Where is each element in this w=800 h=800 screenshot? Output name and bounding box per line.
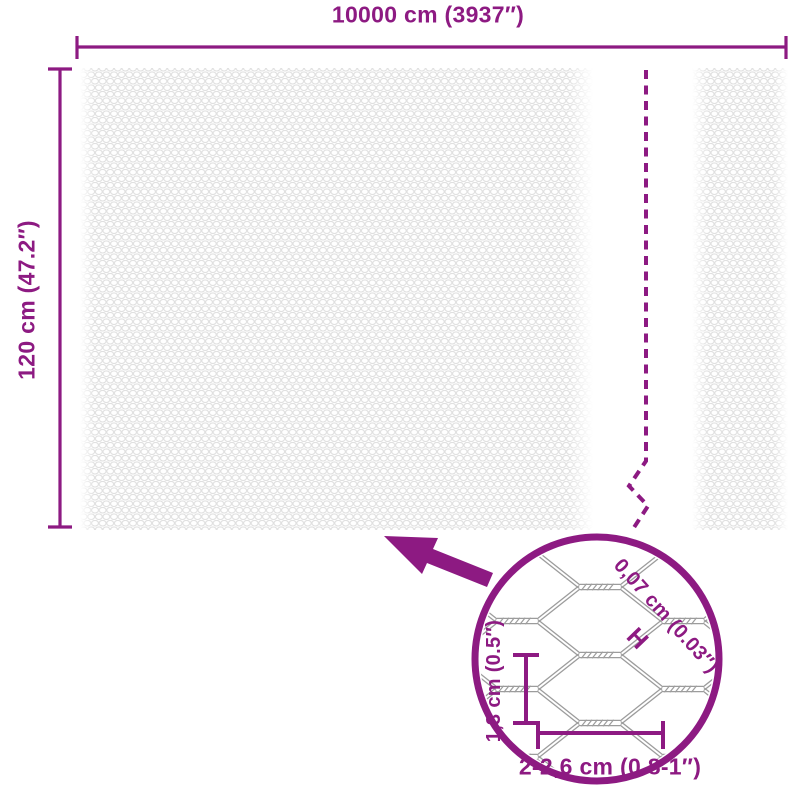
product-dimension-diagram: 10000 cm (3937″) 120 cm (47.2″) 0,07 cm …: [0, 0, 800, 800]
break-line: [629, 70, 648, 529]
diagram-graphics: [0, 0, 800, 800]
width-dimension-line: [77, 36, 786, 59]
mesh-opening-width-label: 2-2,6 cm (0.8-1″): [519, 756, 701, 779]
height-label: 120 cm (47.2″): [16, 220, 39, 380]
mesh-fade: [568, 68, 593, 530]
height-dimension-line: [48, 69, 72, 527]
mesh-fade: [692, 68, 708, 530]
mesh-fade: [80, 68, 94, 530]
width-label: 10000 cm (3937″): [332, 4, 524, 27]
zoom-arrow: [384, 536, 493, 587]
mesh-opening-height-label: 1,3 cm (0.5″): [484, 620, 504, 742]
mesh-fade: [774, 68, 788, 530]
mesh-panel-main: [80, 68, 593, 530]
